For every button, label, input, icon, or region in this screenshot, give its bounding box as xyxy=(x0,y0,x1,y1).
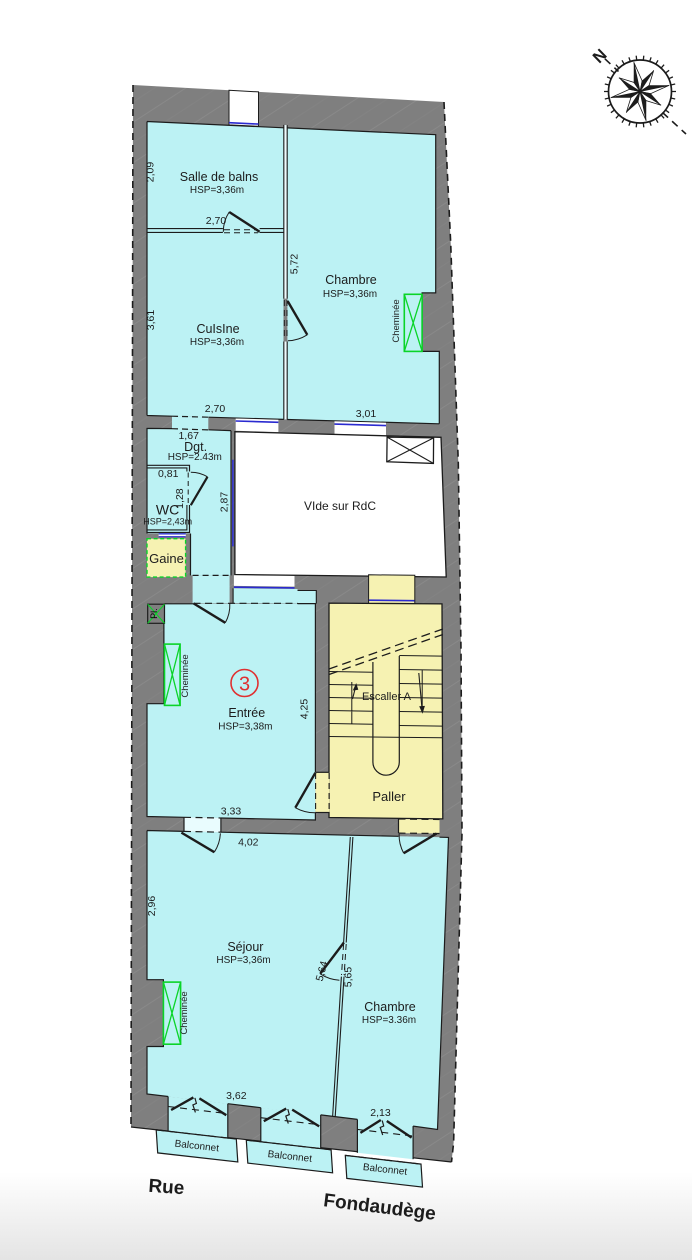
svg-text:3,01: 3,01 xyxy=(356,408,377,420)
svg-text:Chambre: Chambre xyxy=(325,273,376,287)
svg-text:3,62: 3,62 xyxy=(226,1090,247,1102)
svg-text:Rue: Rue xyxy=(148,1176,185,1199)
svg-text:HSP=2.43m: HSP=2.43m xyxy=(168,452,222,463)
svg-text:2,09: 2,09 xyxy=(145,162,157,183)
svg-text:2,87: 2,87 xyxy=(219,492,231,513)
svg-text:VIde sur RdC: VIde sur RdC xyxy=(304,499,376,513)
svg-text:Cheminée: Cheminée xyxy=(180,654,191,697)
svg-text:3,33: 3,33 xyxy=(221,806,242,818)
svg-text:WC: WC xyxy=(156,502,179,518)
svg-text:HSP=3,38m: HSP=3,38m xyxy=(218,722,272,733)
svg-text:Gaine: Gaine xyxy=(149,551,184,566)
svg-text:Chambre: Chambre xyxy=(364,1000,415,1014)
svg-text:2,13: 2,13 xyxy=(370,1107,391,1119)
svg-text:4,25: 4,25 xyxy=(299,699,311,720)
svg-text:Cheminée: Cheminée xyxy=(391,299,402,342)
svg-text:Entrée: Entrée xyxy=(228,706,265,720)
svg-text:HSP=3.36m: HSP=3.36m xyxy=(362,1015,416,1026)
svg-text:3: 3 xyxy=(239,674,250,696)
svg-text:HSP=3,36m: HSP=3,36m xyxy=(190,185,244,196)
svg-text:Paller: Paller xyxy=(372,789,406,804)
svg-text:HSP=2,43m: HSP=2,43m xyxy=(143,517,192,527)
svg-text:2,70: 2,70 xyxy=(205,403,226,415)
svg-text:4,02: 4,02 xyxy=(238,837,259,849)
svg-text:HSP=3,36m: HSP=3,36m xyxy=(190,337,244,348)
svg-text:HSP=3,36m: HSP=3,36m xyxy=(216,955,270,966)
svg-text:5,65: 5,65 xyxy=(343,967,355,988)
svg-text:Séjour: Séjour xyxy=(227,940,263,954)
svg-text:Escaller A: Escaller A xyxy=(362,691,412,703)
svg-text:3,61: 3,61 xyxy=(145,310,157,331)
svg-text:CuIsIne: CuIsIne xyxy=(196,322,239,336)
svg-text:2,70: 2,70 xyxy=(206,215,227,227)
svg-text:Cheminée: Cheminée xyxy=(179,991,190,1034)
svg-text:Salle de balns: Salle de balns xyxy=(180,170,259,184)
svg-text:0,81: 0,81 xyxy=(158,468,179,480)
svg-text:5,72: 5,72 xyxy=(289,254,301,275)
svg-text:Pl.: Pl. xyxy=(149,608,159,619)
svg-text:2,96: 2,96 xyxy=(146,896,158,917)
svg-text:HSP=3,36m: HSP=3,36m xyxy=(323,289,377,300)
